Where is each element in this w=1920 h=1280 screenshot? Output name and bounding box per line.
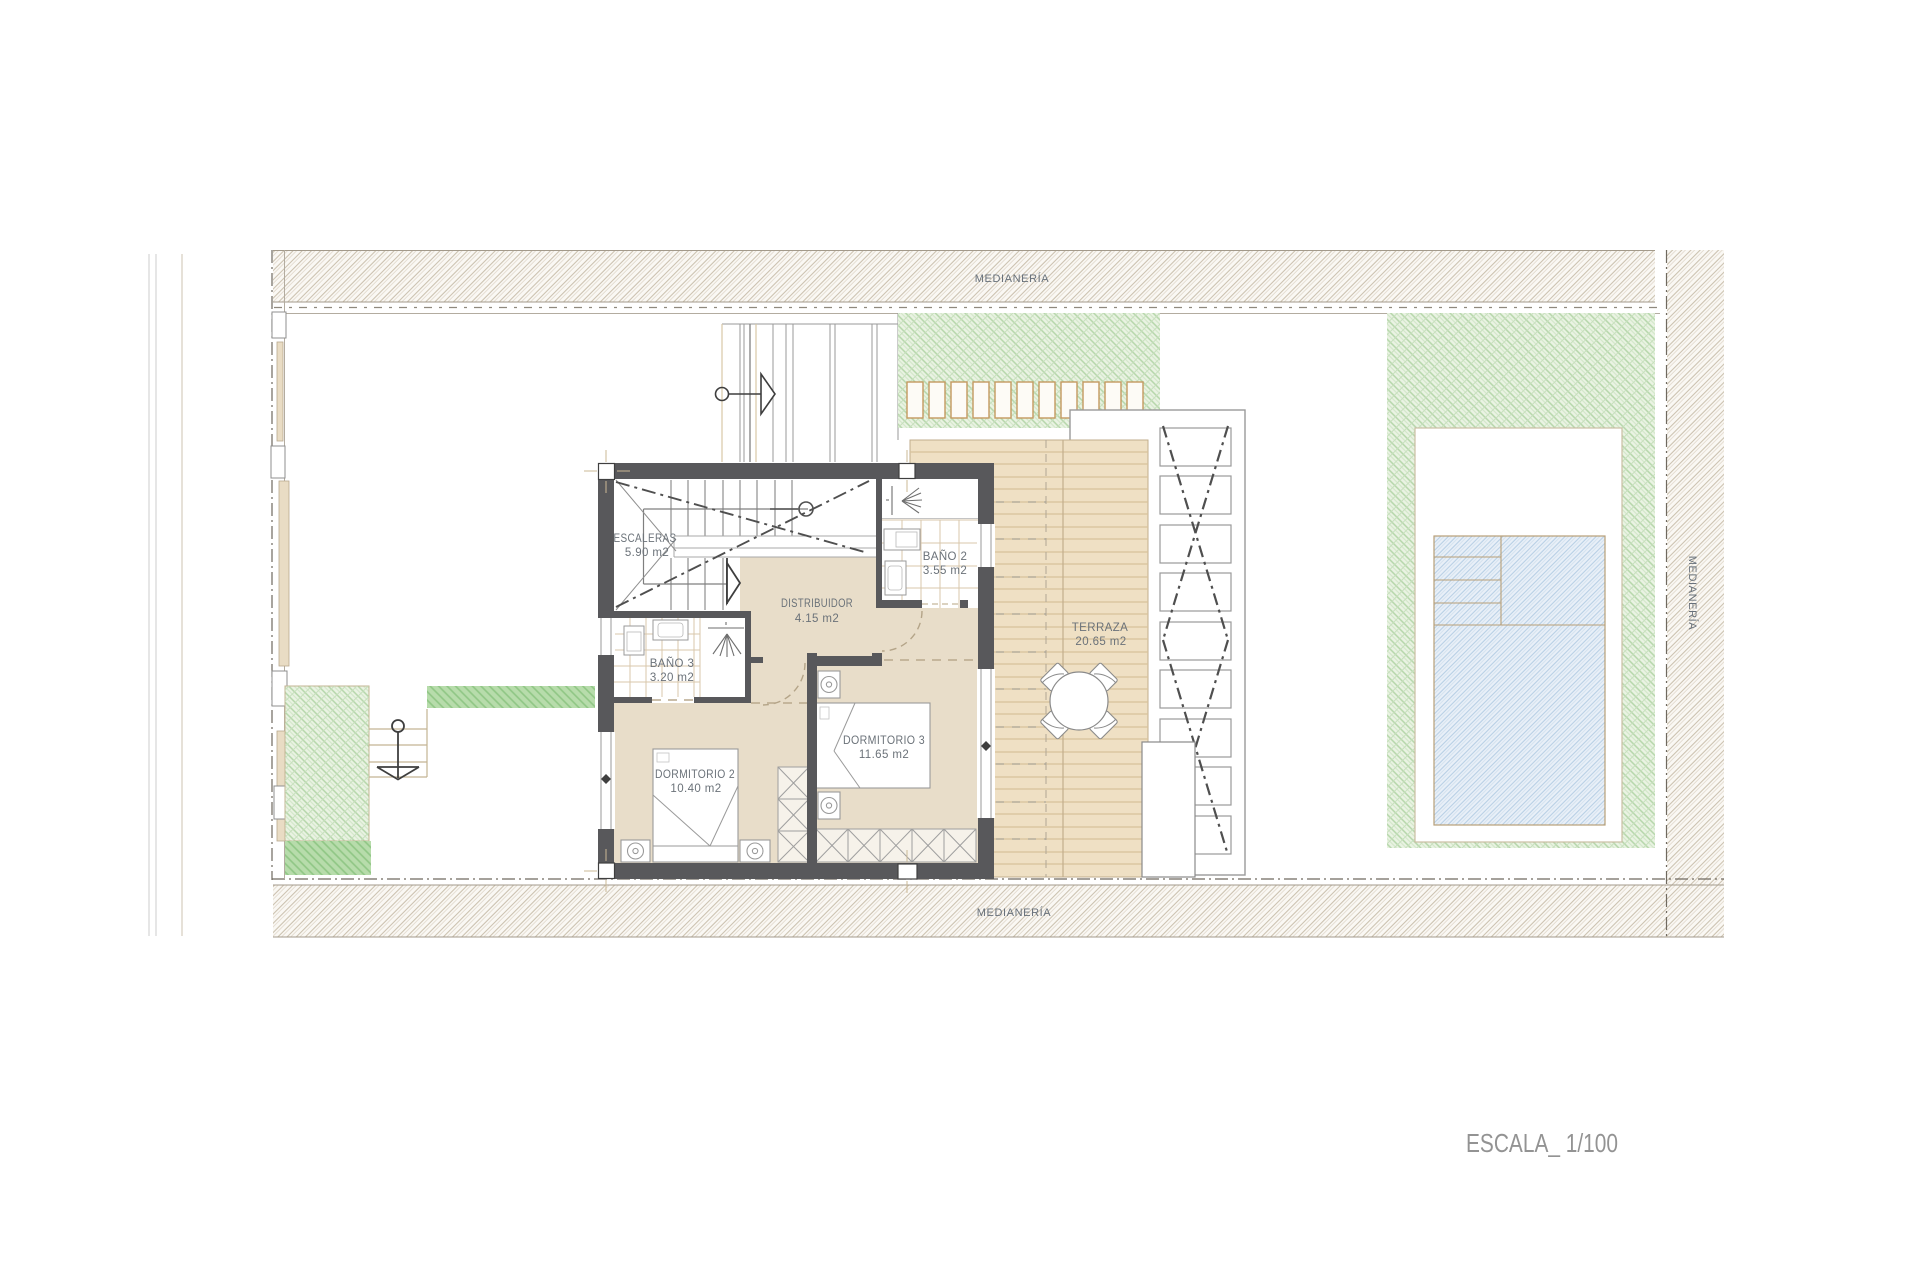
svg-text:5.90 m2: 5.90 m2 xyxy=(625,547,669,559)
svg-text:TERRAZA: TERRAZA xyxy=(1072,622,1128,634)
svg-text:BAÑO 3: BAÑO 3 xyxy=(650,657,695,670)
svg-text:DORMITORIO 2: DORMITORIO 2 xyxy=(655,769,735,781)
svg-text:MEDIANERÍA: MEDIANERÍA xyxy=(975,272,1050,285)
svg-text:DORMITORIO 3: DORMITORIO 3 xyxy=(843,735,925,747)
svg-text:4.15 m2: 4.15 m2 xyxy=(795,613,839,625)
svg-text:11.65 m2: 11.65 m2 xyxy=(859,749,909,761)
svg-text:ESCALA_ 1/100: ESCALA_ 1/100 xyxy=(1466,1128,1618,1158)
svg-text:20.65 m2: 20.65 m2 xyxy=(1075,636,1126,648)
svg-text:BAÑO 2: BAÑO 2 xyxy=(923,550,968,563)
svg-text:3.20 m2: 3.20 m2 xyxy=(650,672,694,684)
svg-text:10.40 m2: 10.40 m2 xyxy=(670,783,721,795)
svg-text:MEDIANERÍA: MEDIANERÍA xyxy=(977,906,1052,919)
svg-text:ESCALERAS: ESCALERAS xyxy=(614,533,677,545)
svg-text:MEDIANERÍA: MEDIANERÍA xyxy=(1686,556,1699,631)
svg-text:DISTRIBUIDOR: DISTRIBUIDOR xyxy=(781,598,853,610)
svg-text:3.55 m2: 3.55 m2 xyxy=(923,565,967,577)
